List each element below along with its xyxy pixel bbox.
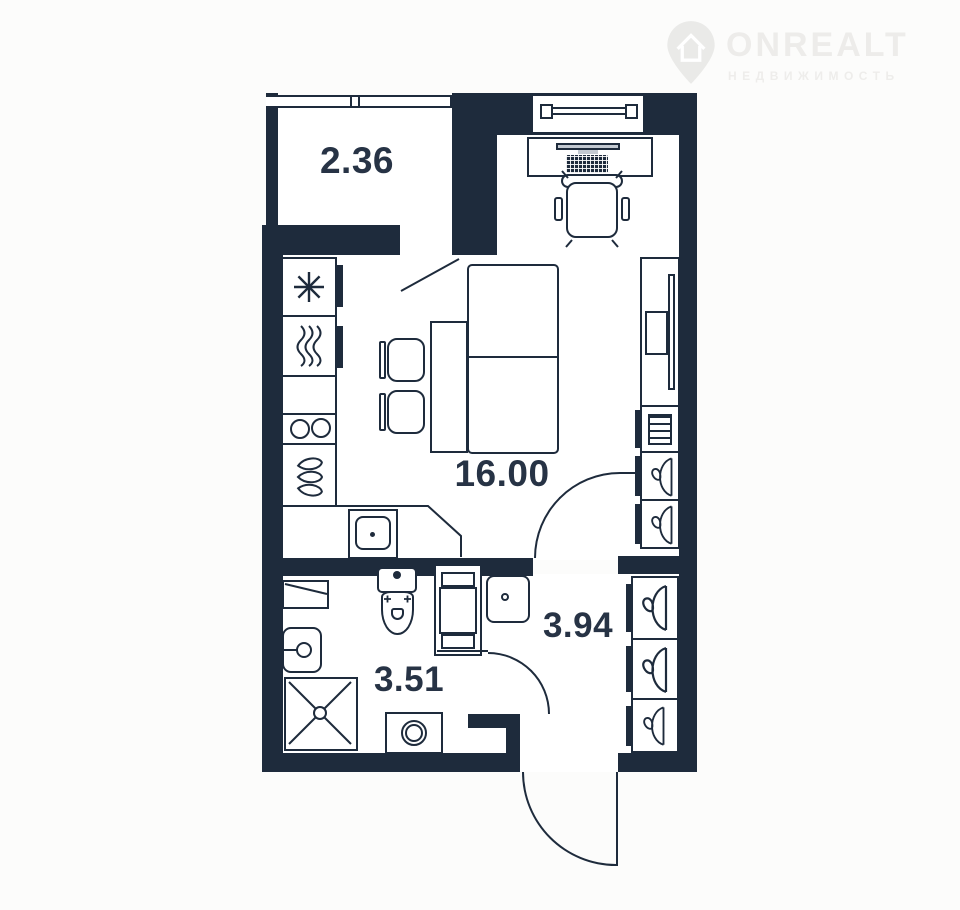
washer-door-inner-icon (405, 724, 423, 742)
hallway-area-label: 3.94 (518, 606, 638, 646)
wardrobe (640, 499, 680, 549)
tile-tick-icon (278, 637, 283, 642)
sofa-cushion-divider (469, 356, 557, 358)
sofa (467, 264, 559, 454)
hall-wardrobe (631, 576, 679, 640)
chair-seat (387, 390, 425, 434)
wall-left (262, 225, 283, 772)
dining-table (430, 321, 468, 453)
fridge-handle-icon (337, 265, 343, 307)
tv-screen-icon (668, 274, 675, 390)
hob (281, 413, 337, 445)
brand-name: ONREALT (726, 26, 909, 65)
wall-bathroom-stub (468, 714, 520, 728)
balcony-area-label: 2.36 (297, 140, 417, 182)
wall-balcony-right-pier (452, 93, 497, 255)
brand-logo: ONREALT НЕДВИЖИМОСТЬ (650, 16, 950, 96)
oven-handle-icon (337, 326, 343, 368)
entrance-opening (520, 753, 618, 772)
tv-bracket-icon (645, 311, 668, 355)
keyboard-icon (566, 155, 608, 173)
balcony-window (266, 95, 462, 108)
wall-balcony-left (266, 93, 278, 225)
tile-tick-icon (278, 648, 283, 653)
kitchen-counter-drainer (281, 443, 337, 507)
hall-wardrobe (631, 638, 679, 700)
brand-subtitle: НЕДВИЖИМОСТЬ (728, 69, 900, 83)
bathroom-area-label: 3.51 (349, 660, 469, 700)
wall-room-hall-divider-right (618, 556, 679, 574)
unit-door-icon (635, 410, 641, 448)
wall-bottom-right (618, 753, 697, 772)
hall-cabinet-shelf (441, 572, 475, 587)
hall-cabinet-shelf (441, 634, 475, 649)
wardrobe (640, 451, 680, 501)
hall-wardrobe (631, 698, 679, 753)
unit-door-icon (635, 504, 641, 544)
unit-door-icon (626, 706, 632, 746)
unit-door-icon (626, 646, 632, 692)
room-door-leaf (620, 472, 641, 474)
floorplan-canvas: ONREALT НЕДВИЖИМОСТЬ (0, 0, 960, 910)
stool-dot-icon (501, 593, 509, 601)
window-glass-icon (551, 107, 627, 115)
drawer-shelves-icon (648, 414, 672, 445)
office-chair-armrest (621, 197, 630, 221)
chair-back (379, 393, 386, 431)
balcony-door-opening (400, 223, 452, 257)
unit-door-icon (635, 456, 641, 496)
entrance-door-arc-icon (522, 772, 616, 866)
bathroom-door-leaf (437, 650, 488, 652)
chair-back (379, 341, 386, 379)
bath-shelf (282, 580, 329, 609)
monitor-stand-icon (578, 150, 598, 154)
wall-right (679, 93, 697, 772)
kitchen-counter-segment (281, 375, 337, 415)
tile-tick-icon (278, 659, 283, 664)
faucet-icon (296, 642, 312, 658)
wall-bathroom-stub-vertical (506, 728, 520, 755)
office-chair-armrest (554, 197, 563, 221)
fridge (281, 257, 337, 317)
wall-bottom-left (262, 753, 520, 772)
hall-cabinet-middle (439, 587, 477, 634)
entrance-door-leaf (616, 772, 618, 866)
chair-seat (387, 338, 425, 382)
window-mullion-icon (350, 95, 360, 108)
toilet-button-icon (393, 571, 401, 579)
location-pin-icon (660, 18, 722, 88)
oven (281, 315, 337, 377)
monitor-icon (556, 143, 620, 150)
shower-tray (284, 677, 358, 751)
sink-drain-icon (370, 532, 375, 537)
living-room-window (533, 96, 643, 132)
office-chair-seat (566, 182, 618, 238)
living-room-area-label: 16.00 (432, 453, 572, 495)
